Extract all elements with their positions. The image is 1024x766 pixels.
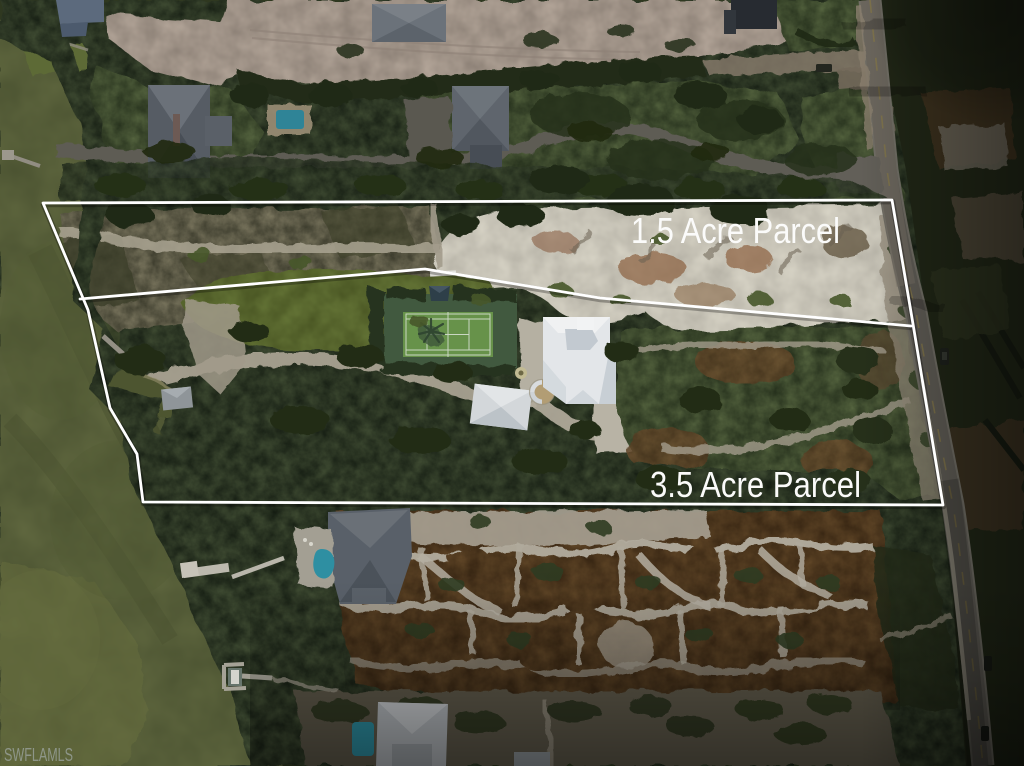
svg-text:SWFLAMLS: SWFLAMLS xyxy=(4,745,73,765)
svg-text:3.5 Acre Parcel: 3.5 Acre Parcel xyxy=(650,464,861,505)
svg-text:1.5 Acre Parcel: 1.5 Acre Parcel xyxy=(631,210,840,251)
